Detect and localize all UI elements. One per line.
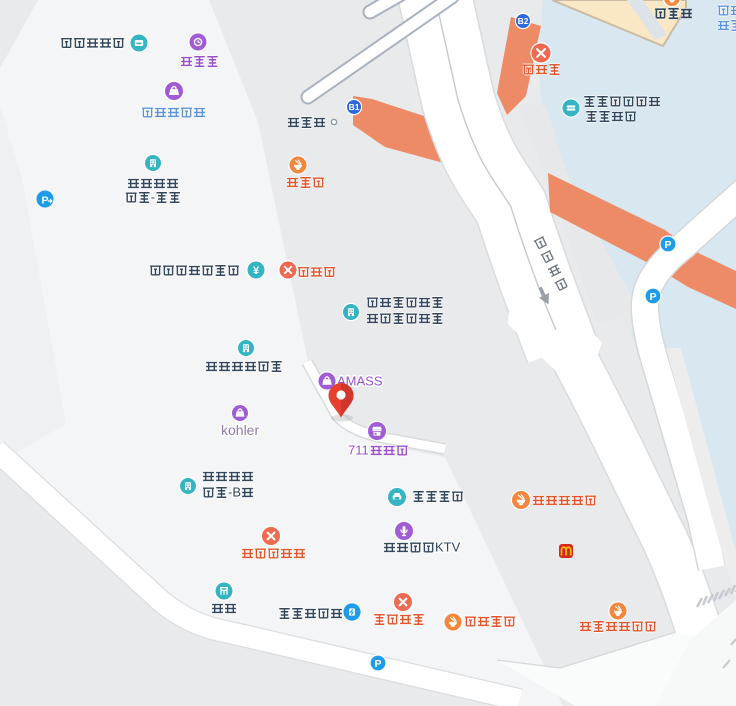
svg-text:KTV: KTV (435, 539, 461, 554)
svg-text:¥: ¥ (253, 265, 260, 277)
svg-text:kohler: kohler (221, 422, 259, 438)
svg-text:P: P (649, 291, 656, 303)
svg-text:B1: B1 (349, 102, 360, 112)
svg-text:-B: -B (228, 484, 241, 499)
svg-text:B2: B2 (518, 16, 529, 26)
svg-text:711: 711 (348, 442, 369, 457)
svg-text:P: P (664, 239, 671, 251)
svg-text:P: P (42, 195, 49, 207)
svg-text:-: - (151, 189, 155, 204)
svg-text:P: P (374, 658, 381, 670)
